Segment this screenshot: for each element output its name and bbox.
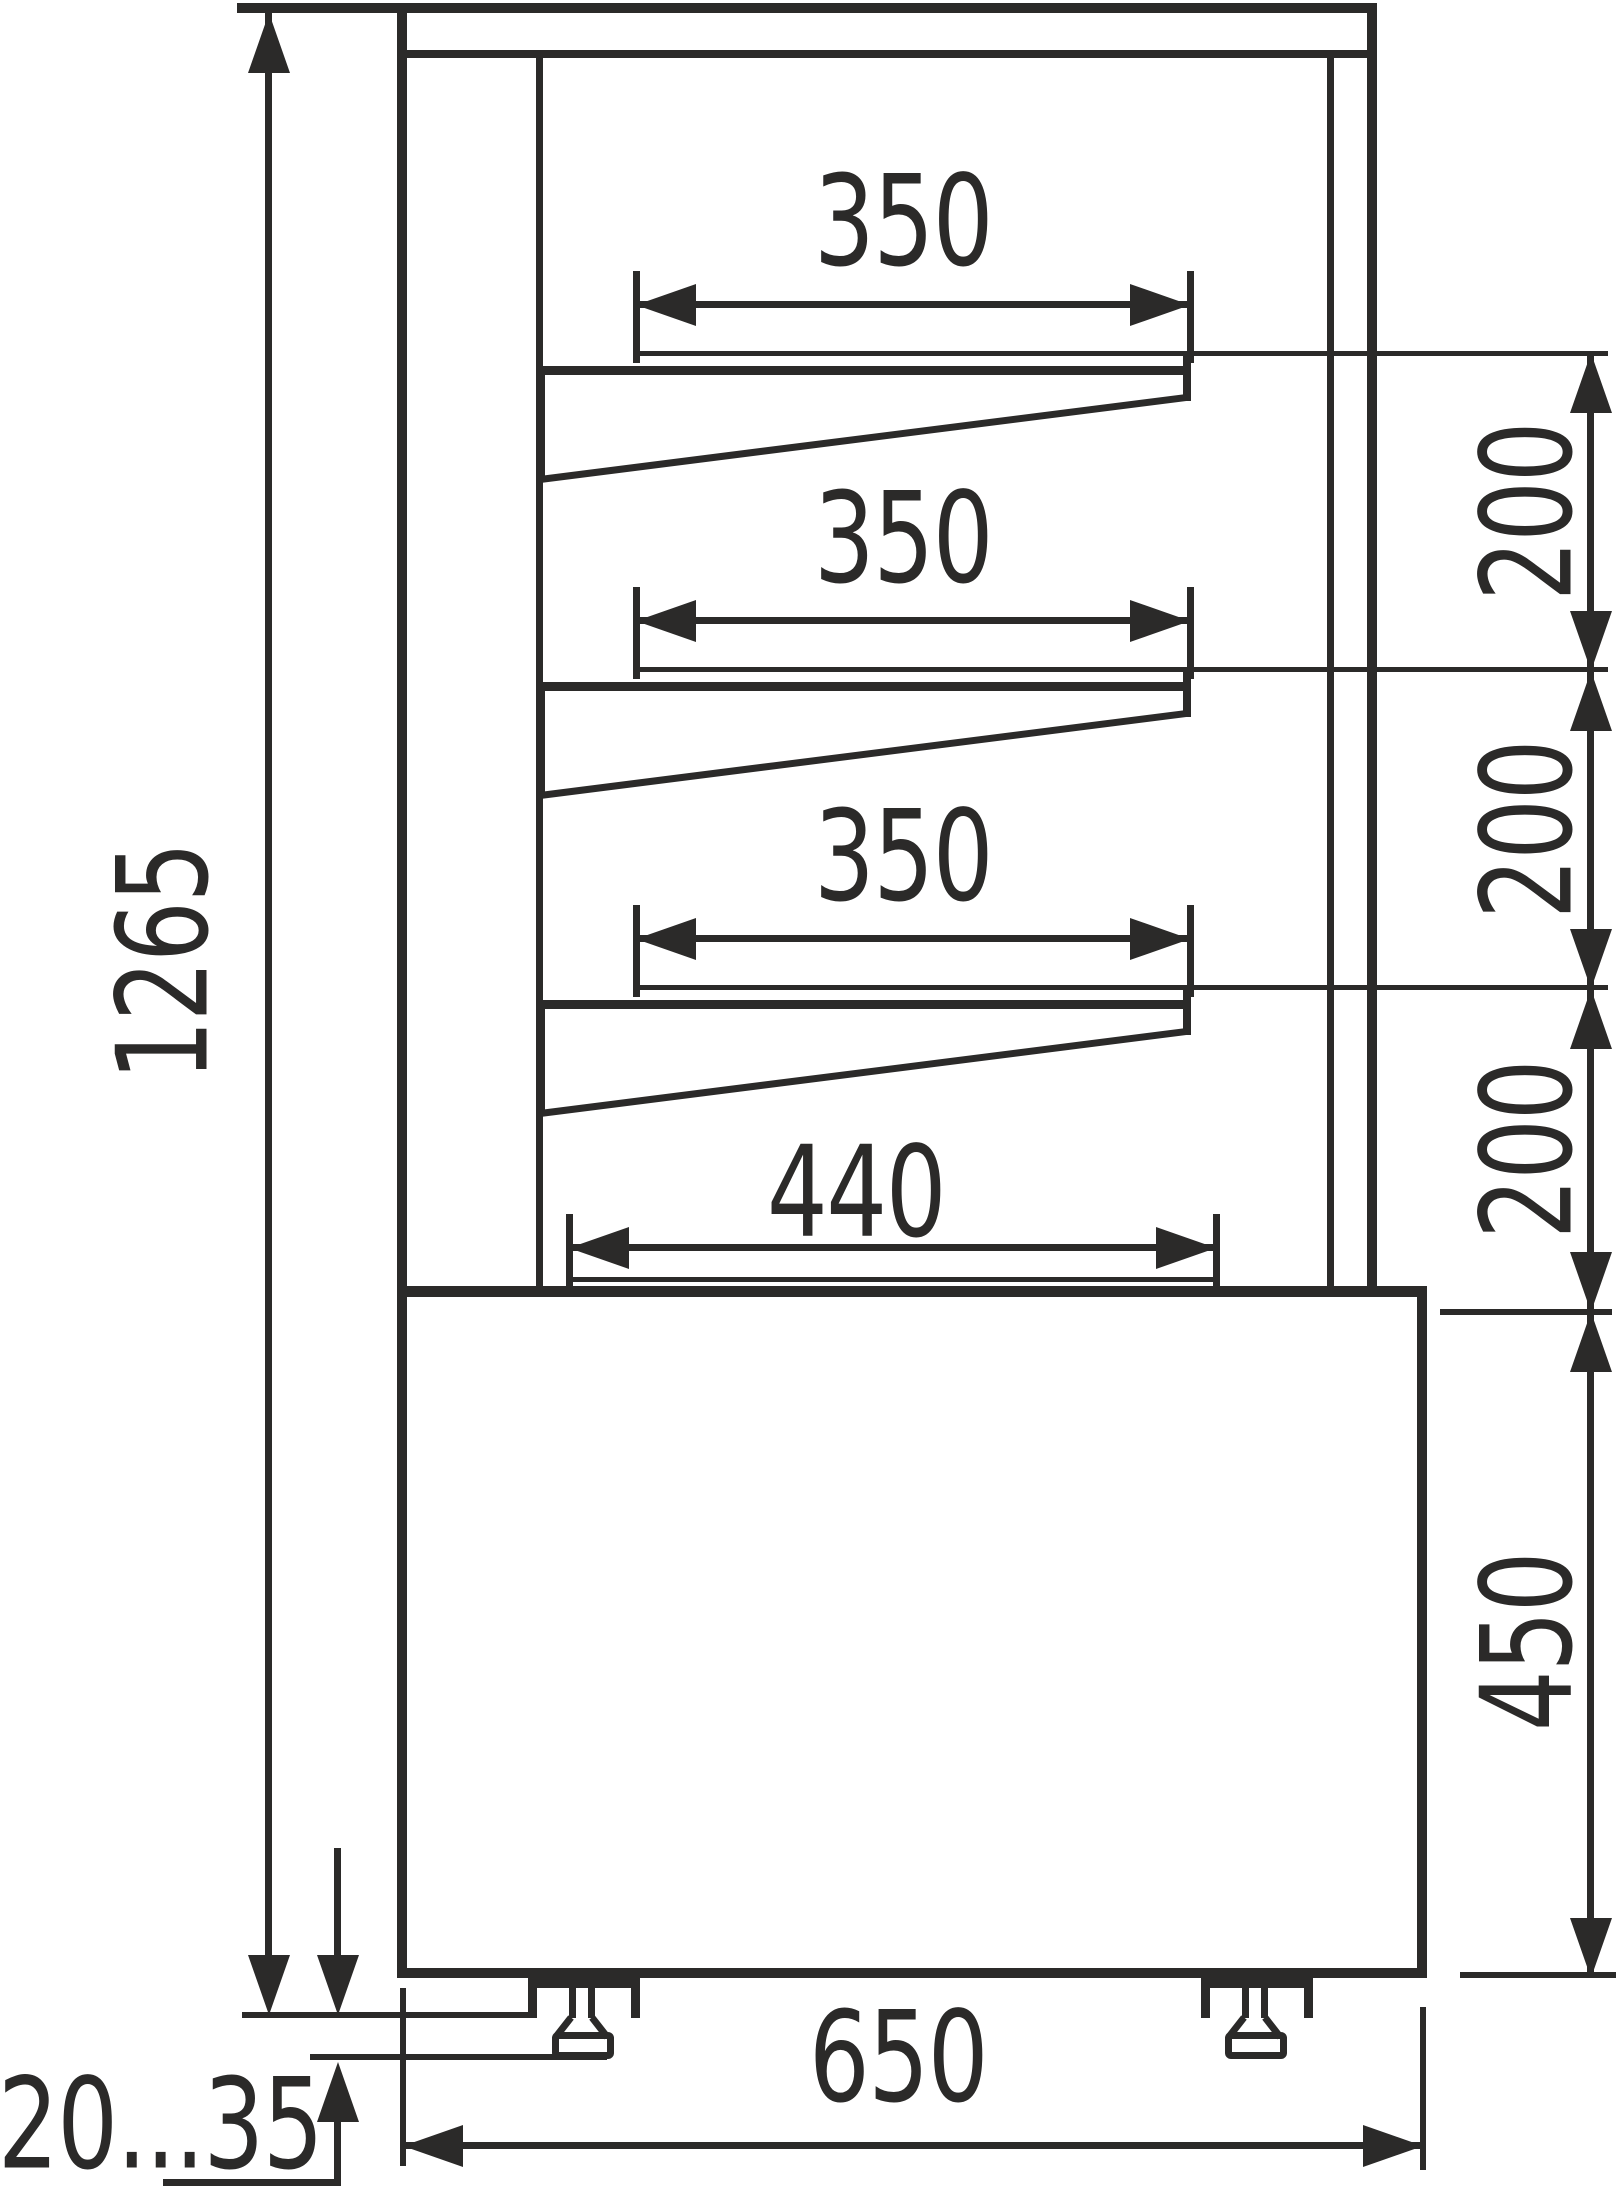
dim-440-arrow-left: [569, 1227, 629, 1269]
dim-200-3-label: 200: [1454, 1061, 1601, 1239]
dim-450-label: 450: [1454, 1553, 1601, 1731]
dim-350-2-arrow-left: [636, 600, 696, 642]
dim-350-1-arrow-left: [636, 284, 696, 326]
shelf1-frame-line: [536, 366, 1190, 375]
dim-350-3-arrow-right: [1130, 918, 1190, 960]
dim-2035-arrow-up: [317, 2062, 359, 2122]
right-foot-flange-left: [1201, 1978, 1210, 2018]
top-panel-top-line: [237, 3, 1377, 13]
dim-350-3-line: [636, 935, 1190, 942]
right-inner-glass-line: [1327, 58, 1334, 1291]
dim-350-2-arrow-right: [1130, 600, 1190, 642]
dim-200-1-label: 200: [1454, 423, 1601, 601]
chain-arrow-down-basebottom: [1570, 1918, 1612, 1978]
dim-350-3-arrow-left: [636, 918, 696, 960]
right-outer-wall: [1367, 3, 1377, 1291]
dim-1265-arrow-down: [248, 1955, 290, 2015]
shelf3-bracket-back: [536, 1005, 545, 1115]
left-foot-flange-top: [528, 1978, 640, 1988]
left-outer-wall: [397, 3, 407, 1978]
right-foot-bolt-right: [1261, 1985, 1268, 2018]
left-foot-flange-right: [631, 1978, 640, 2018]
right-foot-flange-top: [1201, 1978, 1313, 1988]
dim-650-arrow-right: [1363, 2125, 1423, 2167]
dim-650-label: 650: [809, 1984, 987, 2131]
shelf3-bracket-diagonal: [540, 1028, 1188, 1117]
left-foot-bolt-left: [569, 1985, 576, 2018]
chain-arrow-down-shelf2: [1570, 611, 1612, 671]
dim-1265-line: [265, 13, 272, 1955]
display-case-technical-drawing: 350 350 350 440 200 200 200 450 1265 20.…: [0, 0, 1621, 2189]
dim-1265-label: 1265: [90, 843, 237, 1081]
dim-350-2-label: 350: [814, 465, 992, 612]
chain-arrow-up-counter: [1570, 1312, 1612, 1372]
left-foot-flange-left: [528, 1978, 537, 2018]
dim-440-label: 440: [767, 1119, 945, 1266]
shelf1-glass-line: [640, 351, 1608, 356]
shelf2-glass-line: [640, 667, 1608, 672]
right-foot-pad: [1225, 2032, 1287, 2059]
dim-350-3-label: 350: [814, 783, 992, 930]
dim-2035-label: 20...35: [0, 2051, 322, 2189]
shelf3-glass-line: [640, 985, 1608, 990]
deck-surface-line: [569, 1277, 1216, 1282]
shelf2-frame-line: [536, 682, 1190, 691]
dim-200-2-label: 200: [1454, 741, 1601, 919]
dim-2035-lower-line: [334, 2122, 341, 2183]
chain-arrow-down-shelf3: [1570, 929, 1612, 989]
left-foot-bolt-right: [588, 1985, 595, 2018]
dim-350-2-line: [636, 617, 1190, 624]
chain-arrow-up-shelf2: [1570, 671, 1612, 731]
dim-1265-arrow-up: [248, 13, 290, 73]
shelf3-frame-line: [536, 1000, 1190, 1009]
dim-350-1-arrow-right: [1130, 284, 1190, 326]
dim-650-arrow-left: [403, 2125, 463, 2167]
base-top-line: [397, 1286, 1427, 1297]
dim-350-1-line: [636, 301, 1190, 308]
chain-arrow-up-shelf1: [1570, 353, 1612, 413]
chain-arrow-up-shelf3: [1570, 989, 1612, 1049]
chain-arrow-down-counter: [1570, 1252, 1612, 1312]
ext-line-min-height-level: [242, 2012, 529, 2018]
left-foot-pad: [552, 2032, 614, 2059]
base-bottom-line: [403, 1968, 1427, 1978]
dim-440-arrow-right: [1156, 1227, 1216, 1269]
top-panel-underside-line: [407, 50, 1372, 58]
shelf1-bracket-back: [536, 371, 545, 481]
dim-350-1-label: 350: [814, 148, 992, 295]
dim-2035-arrow-down: [317, 1955, 359, 2015]
base-right-wall: [1417, 1291, 1427, 1978]
right-foot-bolt-left: [1242, 1985, 1249, 2018]
dim-2035-upper-line: [334, 1848, 341, 1955]
right-foot-flange-right: [1304, 1978, 1313, 2018]
dim-650-line: [403, 2142, 1423, 2149]
shelf2-bracket-back: [536, 687, 545, 797]
